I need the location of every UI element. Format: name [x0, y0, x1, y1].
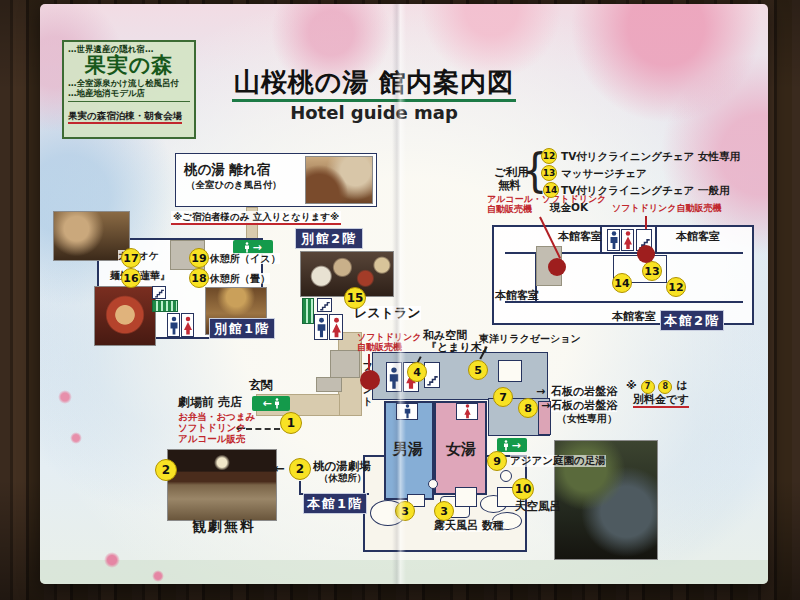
marker-8: 8: [518, 398, 538, 418]
theater-sub-label: （休憩所）: [319, 473, 367, 483]
marker-2: 2: [155, 459, 177, 481]
marker-15: 15: [344, 287, 366, 309]
ramen-photo: [94, 286, 156, 346]
plan-line: [655, 225, 657, 253]
front-desk-block: [316, 377, 342, 392]
restaurant-label: レストラン: [354, 306, 421, 320]
front-desk-block: [330, 350, 360, 378]
marker-14: 14: [612, 273, 632, 293]
page-title-block: 山桜桃の湯 館内案内図 Hotel guide map: [228, 68, 520, 122]
male-restroom-icon: [167, 313, 180, 337]
photo-of-hotel-guide-map: …世界遺産の隠れ宿… 果実の森 …全室源泉かけ流し桧風呂付 …地産地消モデル店 …: [0, 0, 800, 600]
rest-area-chair-label: 休憩所（イス）: [210, 253, 280, 264]
note-post: は: [676, 379, 687, 392]
rest-area-tatami-label: 休憩所（畳）: [210, 273, 270, 284]
exit-sign-left: ←: [252, 396, 290, 411]
kajitsu-venue: 果実の森宿泊棟・朝食会場: [68, 111, 182, 123]
softdrink-vending-center-2: 自動販売機: [357, 343, 402, 353]
guide-map-sheet: …世界遺産の隠れ宿… 果実の森 …全室源泉かけ流し桧風呂付 …地産地消モデル店 …: [40, 4, 768, 584]
marker-4: 4: [407, 362, 427, 382]
legend-marker-14: 14: [543, 182, 559, 198]
hanare-note: ※ご宿泊者様のみ 立入りとなります※: [171, 211, 341, 225]
vending-leader-line: [368, 354, 370, 370]
male-restroom-icon: [314, 314, 328, 340]
male-bath-icon: [396, 403, 418, 420]
hanare-title: 桃の湯 離れ宿: [184, 162, 270, 177]
sakura-decoration: [152, 570, 164, 582]
hanare-room-photo: [305, 156, 373, 204]
plan-line: [505, 301, 743, 303]
bekkan-1f-floor-label: 別館1階: [209, 318, 275, 339]
bekkan-2f-floor-label: 別館2階: [295, 228, 363, 249]
page-subtitle: Hotel guide map: [228, 103, 520, 123]
asian-footbath-label: アジアン庭園の足湯: [510, 455, 606, 467]
honkan-2f-floor-label: 本館2階: [660, 310, 724, 331]
sakura-decoration: [58, 390, 72, 404]
page-title: 山桜桃の湯 館内案内図: [228, 68, 520, 97]
bath-tub: [455, 487, 477, 507]
legend-marker-12: 12: [541, 148, 557, 164]
stairs-icon: [152, 286, 166, 299]
bath-tub: [428, 479, 438, 489]
marker-17: 17: [121, 248, 141, 268]
arrow-right-icon: →: [511, 439, 520, 452]
arrow-left-icon: ←: [262, 397, 271, 410]
legend-label-12: TV付リクライニングチェア 女性専用: [561, 151, 740, 163]
legend-marker-13: 13: [541, 165, 557, 181]
alcohol-vending-label-2: 自動販売機: [487, 205, 532, 215]
exit-sign-right: →: [233, 240, 273, 254]
sakura-decoration: [104, 552, 120, 568]
shop-item-2: ソフトドリンク: [178, 423, 246, 433]
sheet-bottom-band: [40, 560, 768, 584]
marker-1: 1: [280, 412, 302, 434]
note-pre: ※: [626, 379, 637, 392]
female-restroom-icon: [329, 314, 343, 340]
arrow-right: →: [541, 400, 550, 412]
guest-room-label: 本館客室: [676, 231, 720, 243]
marker-9: 9: [487, 451, 507, 471]
arrow-right: →: [536, 386, 545, 398]
softdrink-vending-label-right: ソフトドリンク自動販売機: [612, 204, 721, 214]
open-air-bath-label: 露天風呂 数種: [434, 520, 504, 532]
guest-room-label: 本館客室: [558, 231, 602, 243]
marker-16: 16: [121, 268, 141, 288]
paid-note-line2: 別料金です: [633, 394, 689, 408]
bath-tub: [500, 470, 512, 482]
marker-19: 19: [189, 248, 209, 268]
marker-12: 12: [666, 277, 686, 297]
male-restroom-icon: [607, 229, 620, 251]
entrance-label: 玄関: [249, 379, 273, 392]
legend-label-13: マッサージチェア: [561, 168, 647, 180]
theater-label: 桃の湯劇場: [313, 460, 371, 473]
ganban-label-2: 石板の岩盤浴: [551, 400, 617, 412]
marker-5: 5: [468, 360, 488, 380]
female-restroom-icon: [181, 313, 194, 337]
marker-7: 7: [493, 387, 513, 407]
massage-bed: [498, 360, 522, 382]
vending-machine-row: [302, 298, 314, 324]
softdrink-vending-location: [637, 245, 655, 263]
hanare-subtitle: （全室ひのき風呂付）: [186, 180, 282, 190]
kajitsu-feature2: …地産地消モデル店: [68, 89, 190, 98]
softdrink-vending-location: [360, 370, 380, 390]
divider: [68, 101, 190, 102]
free-use-label-2: 無料: [498, 179, 521, 192]
female-restroom-icon: [621, 229, 634, 251]
marker-2: 2: [289, 458, 311, 480]
ganban-label-1: 石板の岩盤浴: [551, 386, 617, 398]
arrow-right-icon: →: [252, 241, 261, 254]
male-restroom-icon: [386, 362, 402, 392]
sky-bath-label: 天空風呂: [515, 500, 561, 513]
toyo-relaxation-label: 東洋リラクゼーション: [479, 333, 581, 344]
vending-machine-row: [152, 300, 178, 312]
alcohol-vending-location: [548, 258, 566, 276]
exit-sign-right: →: [497, 438, 527, 452]
honkan-1f-floor-label: 本館1階: [303, 493, 367, 514]
guest-room-label: 本館客室: [612, 311, 656, 323]
guest-room-label: 本館客室: [495, 290, 539, 302]
shop-item-1: お弁当・おつまみ: [178, 412, 255, 422]
cash-ok-label: 現金OK: [550, 202, 588, 214]
marker-3: 3: [395, 501, 415, 521]
male-bath-label: 男湯: [393, 441, 423, 458]
marker-3: 3: [434, 501, 454, 521]
stairs-icon: [317, 298, 332, 312]
dashed-arrow: [246, 428, 280, 430]
theater-photo: [167, 449, 277, 521]
shop-title: 劇場前 売店: [178, 396, 242, 409]
sakura-decoration: [70, 432, 82, 444]
free-show-label: 観劇無料: [192, 519, 256, 534]
female-bath-label: 女湯: [446, 441, 476, 458]
shop-item-3: アルコール販売: [178, 434, 245, 444]
marker-10: 10: [512, 478, 534, 500]
kajitsu-no-mori-box: …世界遺産の隠れ宿… 果実の森 …全室源泉かけ流し桧風呂付 …地産地消モデル店 …: [62, 40, 196, 139]
female-bath-icon: [456, 403, 478, 420]
marker-18: 18: [189, 268, 209, 288]
marker-13: 13: [642, 261, 662, 281]
kajitsu-name: 果実の森: [68, 54, 190, 77]
ganban-label-2-sub: （女性専用）: [557, 413, 617, 424]
arrow-to-theater: ←: [274, 462, 285, 476]
